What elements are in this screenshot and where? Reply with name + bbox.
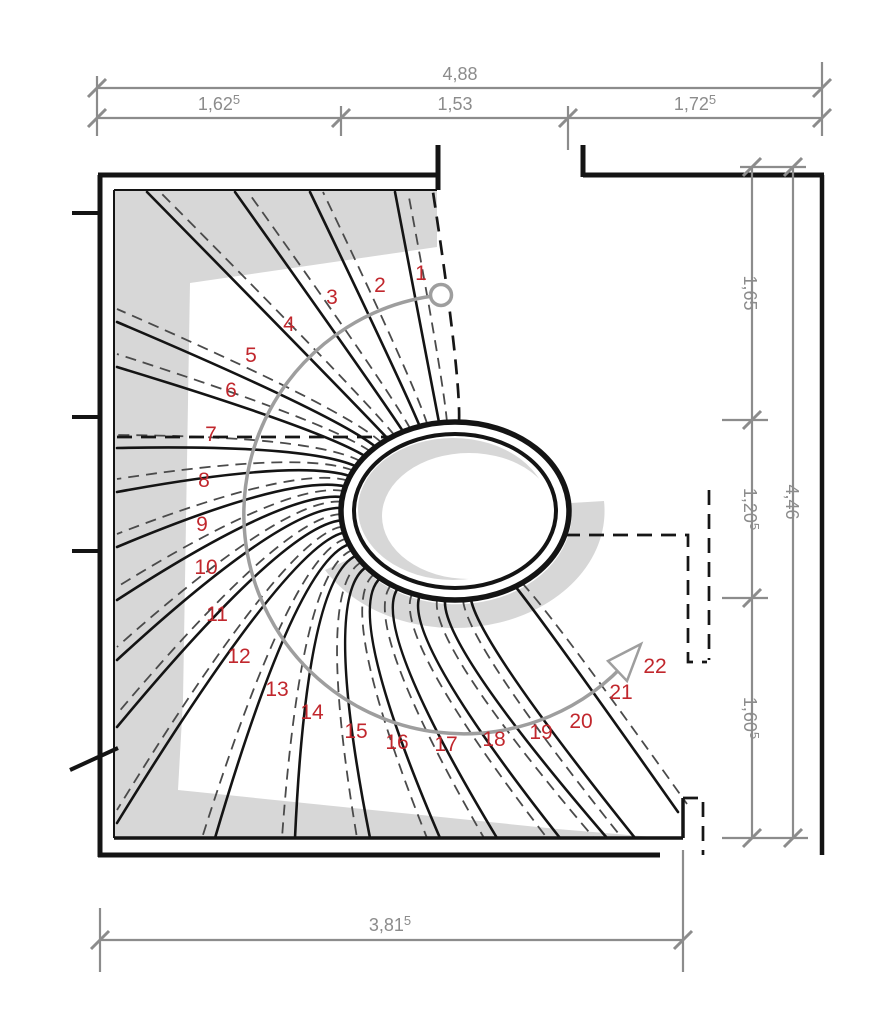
wall-line <box>70 748 118 770</box>
step-number-label: 4 <box>283 313 295 336</box>
dimension-label-top-segment: 1,725 <box>674 92 716 114</box>
dimension-label-right-segment: 1,205 <box>740 488 762 530</box>
dimension-label-top-segment: 1,625 <box>198 92 240 114</box>
step-number-label: 12 <box>227 645 250 668</box>
step-number-label: 14 <box>300 701 324 724</box>
dimension-superscript: 5 <box>709 92 716 107</box>
dimension-value: 1,20 <box>740 488 760 523</box>
dimension-superscript: 5 <box>233 92 240 107</box>
tread-hidden-edge-line <box>522 583 687 804</box>
step-number-label: 11 <box>206 603 228 626</box>
step-number-label: 1 <box>415 262 427 285</box>
dimension-value: 1,65 <box>740 275 760 310</box>
dimension-label-right-segment: 1,65 <box>740 275 760 310</box>
dimension-label-right-segment: 1,605 <box>740 697 762 739</box>
stair-plan-drawing: 12345678910111213141516171819202122 4,88… <box>0 0 887 1023</box>
step-number-label: 7 <box>205 423 217 446</box>
step-number-label: 17 <box>434 733 457 756</box>
dimension-label-top-total: 4,88 <box>442 64 477 84</box>
floor-opening-edge-line <box>433 192 459 422</box>
step-number-label: 18 <box>482 728 505 751</box>
stair-plan-svg: 12345678910111213141516171819202122 4,88… <box>0 0 887 1023</box>
dimension-superscript: 5 <box>747 523 762 530</box>
dimension-superscript: 5 <box>404 913 411 928</box>
dimension-superscript: 5 <box>747 732 762 739</box>
dimension-label-right-total: 4,46 <box>782 484 802 519</box>
step-edge-line <box>515 587 678 813</box>
step-number-label: 2 <box>374 274 386 297</box>
step-number-label: 15 <box>344 720 367 743</box>
step-number-label: 10 <box>194 556 217 579</box>
step-number-label: 16 <box>385 731 408 754</box>
dimension-label-top-segment: 1,53 <box>437 94 472 114</box>
dimension-value: 1,60 <box>740 697 760 732</box>
dimension-label-bottom-total: 3,815 <box>369 913 411 935</box>
step-number-label: 13 <box>265 678 288 701</box>
step-number-label: 21 <box>609 681 632 704</box>
dimension-value: 1,53 <box>437 94 472 114</box>
step-number-label: 8 <box>198 469 210 492</box>
step-number-label: 22 <box>643 655 666 678</box>
dimension-value: 3,81 <box>369 915 404 935</box>
step-number-label: 3 <box>326 286 338 309</box>
step-number-label: 9 <box>196 513 208 536</box>
dimension-value: 4,88 <box>442 64 477 84</box>
step-edge-line <box>418 596 560 838</box>
dimension-value: 1,62 <box>198 94 233 114</box>
step-number-label: 6 <box>225 379 237 402</box>
walking-line-start-marker <box>431 285 452 306</box>
floor-opening-edge-line <box>683 798 703 855</box>
dimension-value: 1,72 <box>674 94 709 114</box>
dimension-value: 4,46 <box>782 484 802 519</box>
step-number-label: 5 <box>245 344 257 367</box>
step-number-label: 19 <box>529 721 552 744</box>
stair-well-layer <box>341 422 569 600</box>
step-number-label: 20 <box>569 710 592 733</box>
